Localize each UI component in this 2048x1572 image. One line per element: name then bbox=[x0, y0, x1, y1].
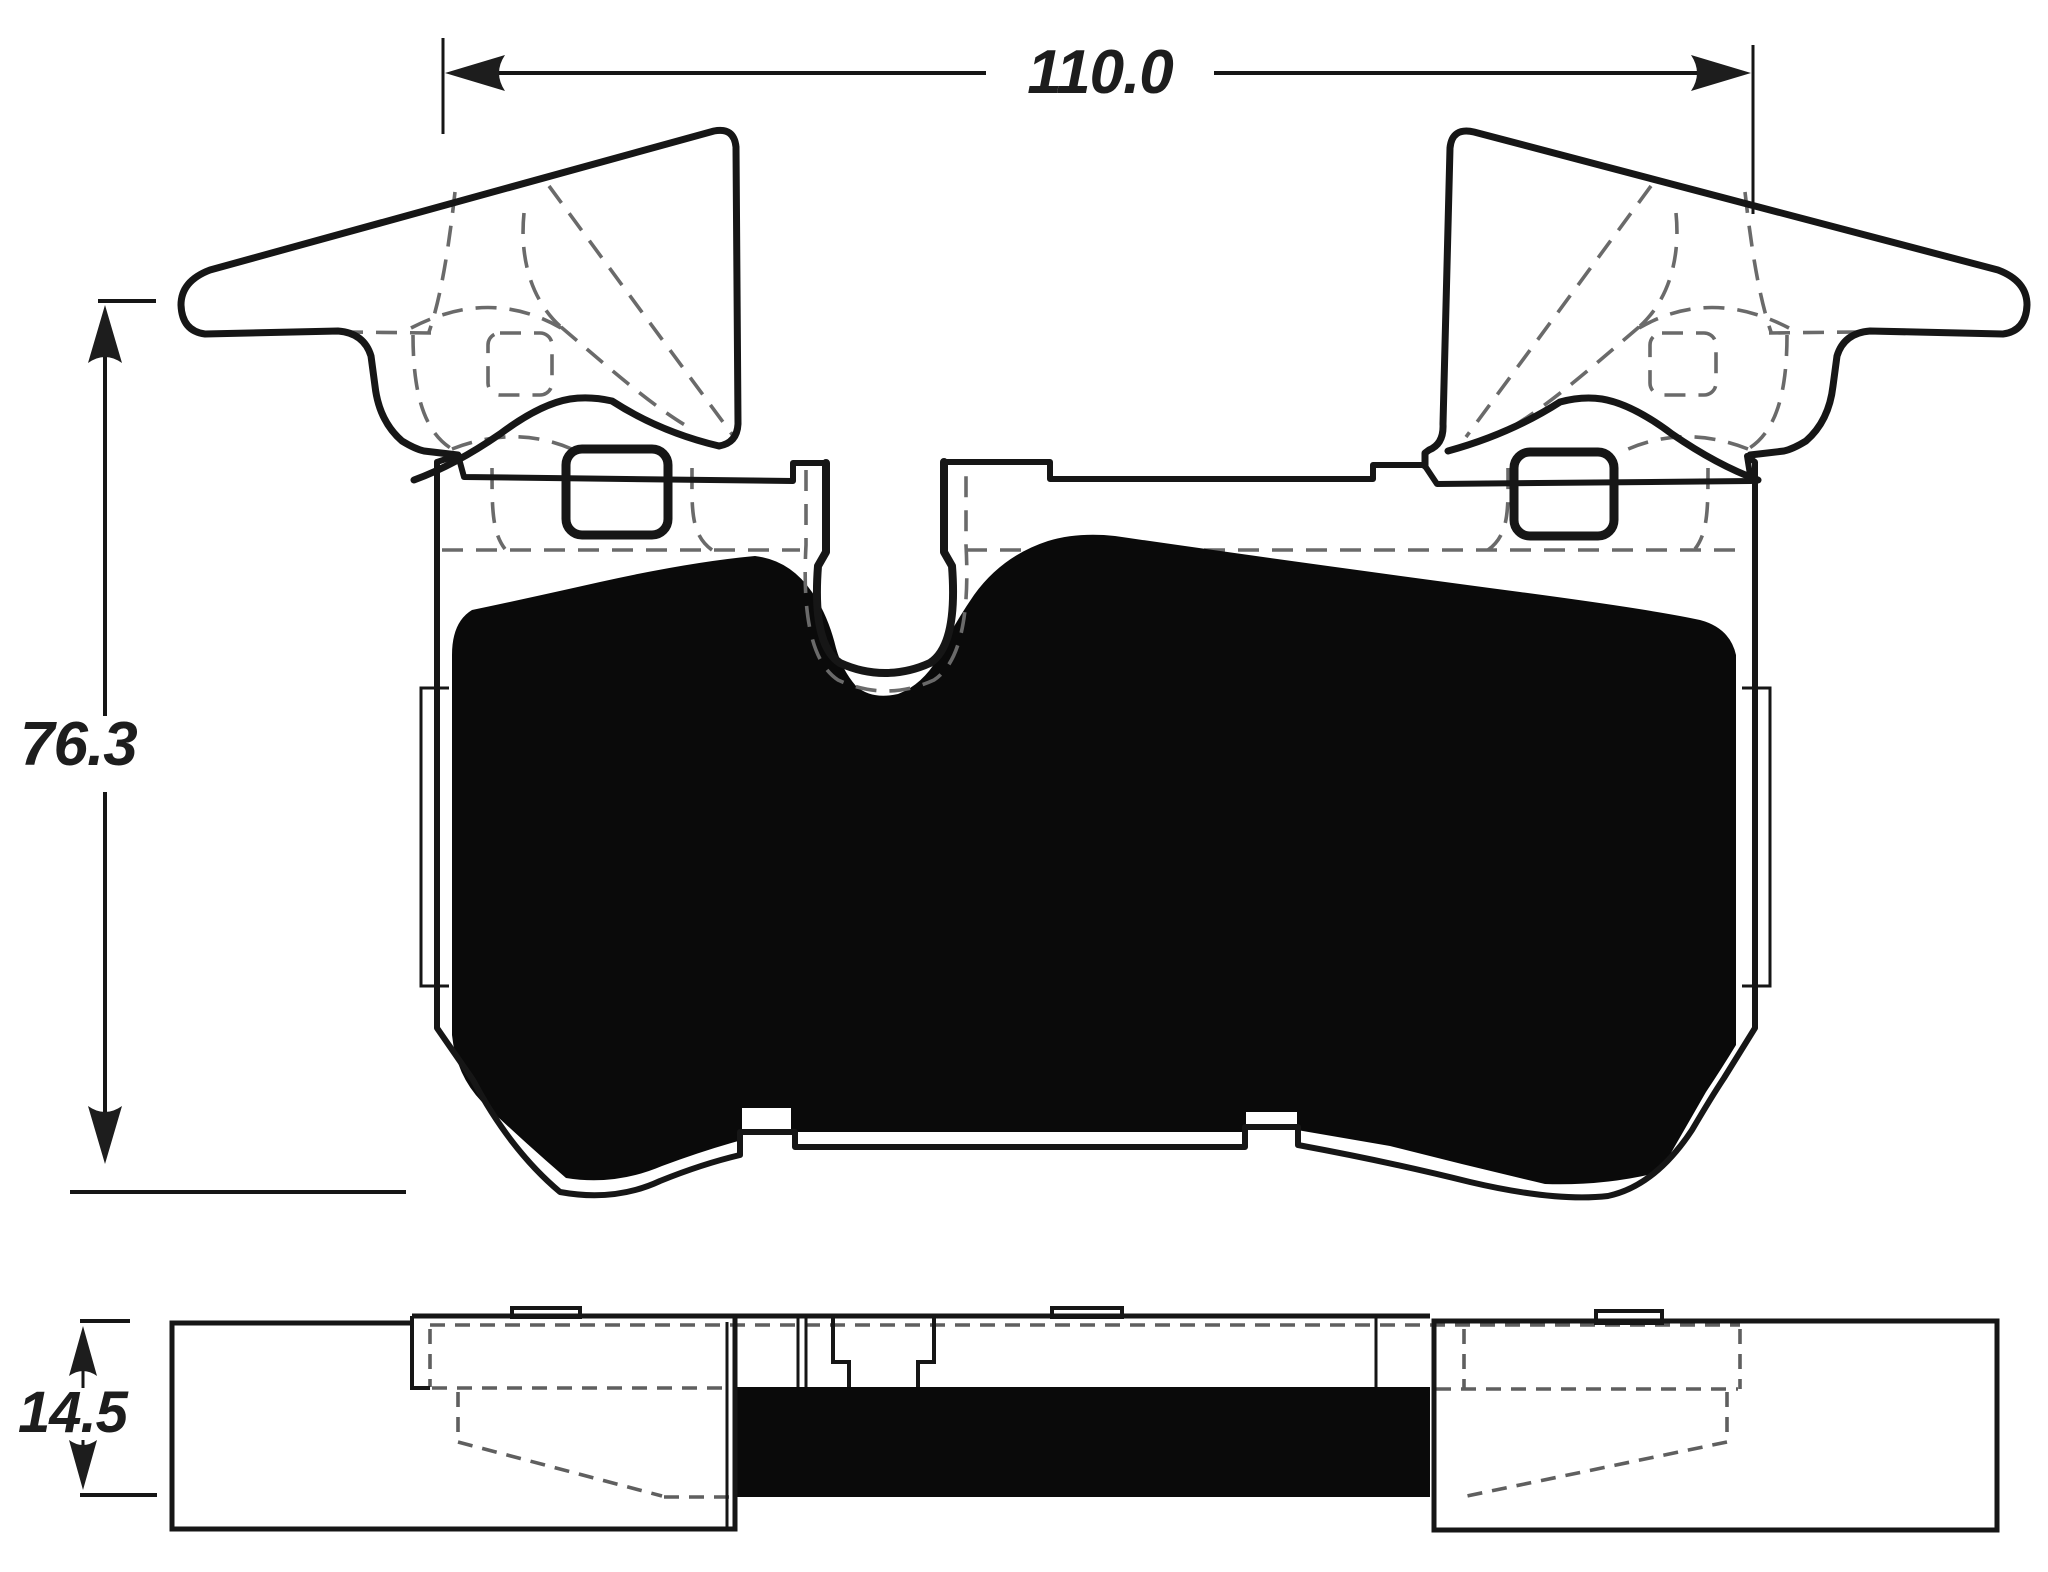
hidden-edge-right bbox=[1748, 335, 1787, 449]
front-view bbox=[181, 130, 2027, 1197]
arrowhead-down-icon bbox=[88, 1106, 122, 1164]
hidden-left-slant bbox=[458, 1442, 662, 1496]
mounting-hole-right bbox=[1514, 452, 1614, 536]
arrowhead-left-icon bbox=[445, 55, 505, 91]
dimension-thickness-label: 14.5 bbox=[18, 1380, 129, 1445]
top-tab-left bbox=[512, 1308, 580, 1317]
thickness-arrow-down-icon bbox=[69, 1440, 97, 1490]
hidden-square-left bbox=[488, 333, 552, 395]
arrowhead-up-icon bbox=[88, 305, 122, 363]
thickness-arrow-up-icon bbox=[69, 1326, 97, 1376]
wing-right bbox=[1425, 131, 2027, 480]
hidden-edge-left bbox=[413, 335, 452, 449]
end-block-left bbox=[172, 1316, 735, 1529]
slot-wall-right-edge bbox=[918, 1318, 934, 1387]
sensor-slot bbox=[817, 462, 953, 673]
brake-pad-diagram: 110.0 76.3 bbox=[0, 0, 2048, 1572]
hidden-clip-right-arc bbox=[1639, 308, 1789, 329]
hidden-clip-right-b bbox=[1639, 213, 1677, 327]
mounting-hole-left bbox=[566, 449, 668, 535]
hidden-flank-right-b bbox=[1488, 468, 1508, 550]
hidden-square-right bbox=[1650, 333, 1716, 395]
wing-left bbox=[181, 130, 738, 480]
dimension-width: 110.0 bbox=[443, 38, 1753, 214]
dimension-thickness: 14.5 bbox=[18, 1321, 157, 1495]
hidden-clip-left-b bbox=[523, 213, 561, 327]
top-tab-right bbox=[1596, 1311, 1662, 1323]
hidden-clip-right-tail bbox=[1510, 327, 1639, 428]
arrowhead-right-icon bbox=[1691, 55, 1751, 91]
dimension-width-label: 110.0 bbox=[1027, 38, 1173, 107]
end-block-right bbox=[1434, 1321, 1997, 1530]
top-tab-middle bbox=[1052, 1308, 1122, 1317]
hidden-right-slant bbox=[1462, 1442, 1727, 1497]
drawing-canvas: 110.0 76.3 bbox=[0, 0, 2048, 1572]
friction-band-edge bbox=[733, 1387, 1430, 1497]
dimension-height-label: 76.3 bbox=[20, 710, 137, 779]
side-view bbox=[172, 1308, 1997, 1530]
strip-step-lines bbox=[798, 1318, 806, 1387]
friction-material bbox=[452, 535, 1736, 1184]
hidden-wing-edge-right bbox=[1768, 332, 1858, 333]
dimension-height: 76.3 bbox=[20, 301, 406, 1192]
hidden-arc-over-hole-left bbox=[452, 437, 574, 450]
slot-wall-left-edge bbox=[833, 1318, 849, 1387]
hidden-clip-left-arc bbox=[411, 308, 561, 329]
